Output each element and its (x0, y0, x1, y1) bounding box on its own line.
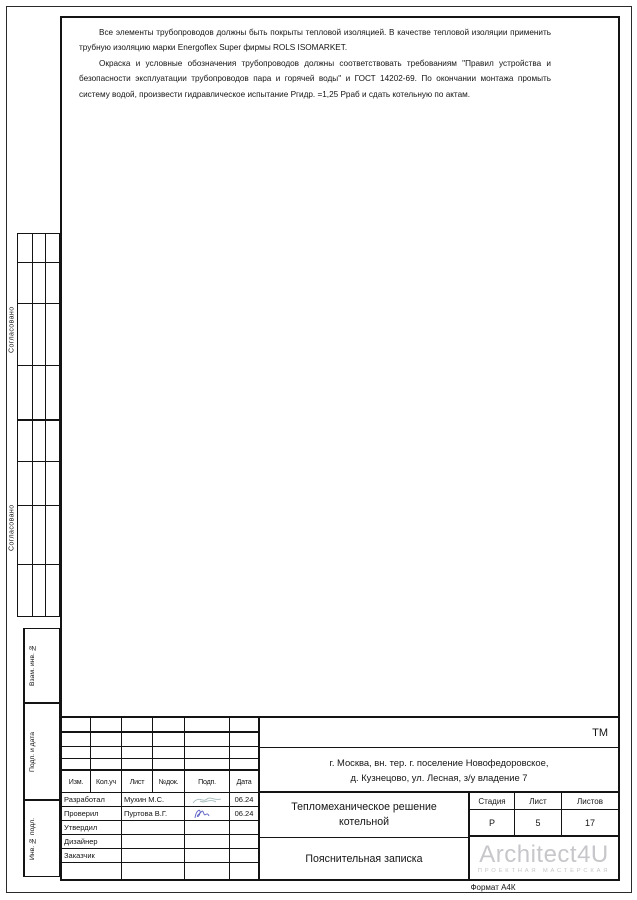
block-inv-podl: Инв. № подл. (23, 800, 60, 877)
empty-cell (62, 718, 91, 733)
empty-cell (46, 462, 59, 506)
empty-cell (230, 759, 258, 771)
row-role: Разработал (62, 793, 122, 807)
empty-cell (185, 718, 230, 733)
empty-cell (33, 565, 46, 616)
row-date: 06.24 (230, 807, 258, 821)
title-block-left-table: Изм. Кол.уч Лист №док. Подп. Дата Разраб… (62, 718, 260, 879)
address-line-1: г. Москва, вн. тер. г. поселение Новофед… (330, 755, 549, 770)
podp-data-label: Подп. и дата (24, 704, 40, 799)
row-name: Пуртова В.Г. (122, 807, 185, 821)
row-name (122, 835, 185, 849)
logo-text: Architect4U (479, 843, 609, 867)
empty-cell (91, 718, 122, 733)
signature-checker-icon (191, 807, 223, 820)
empty-cell (62, 733, 91, 747)
empty-cell (18, 366, 33, 419)
block-podp-data: Подп. и дата (23, 703, 60, 800)
col-header-data: Дата (230, 771, 258, 793)
col-header-izm: Изм. (62, 771, 91, 793)
empty-cell (18, 462, 33, 506)
row-role: Утвердил (62, 821, 122, 835)
stage-value: Р (470, 810, 515, 835)
empty-cell (185, 835, 230, 849)
empty-cell (122, 718, 153, 733)
col-header-podp: Подп. (185, 771, 230, 793)
row-date (230, 849, 258, 863)
empty-cell (122, 759, 153, 771)
empty-cell (33, 506, 46, 565)
empty-cell (91, 759, 122, 771)
empty-cell (62, 747, 91, 759)
col-header-ndok: №док. (153, 771, 185, 793)
vzam-inv-label: Взам. инв. № (24, 629, 40, 702)
agreed-label-2: Согласовано (7, 445, 17, 610)
document-code: ТМ (260, 718, 618, 748)
empty-cell (18, 304, 33, 366)
project-title-line-1: Тепломеханическое решение (291, 800, 437, 815)
empty-cell (33, 421, 46, 462)
agreed-label-1: Согласовано (7, 245, 17, 415)
empty-cell (185, 759, 230, 771)
approval-grid-2 (17, 420, 60, 617)
empty-cell (18, 234, 33, 263)
empty-cell (33, 304, 46, 366)
empty-cell (185, 733, 230, 747)
signature-checker (185, 807, 230, 821)
stage-header: Стадия (470, 793, 515, 810)
sheets-header: Листов (562, 793, 618, 810)
project-title-line-2: котельной (339, 815, 389, 830)
empty-cell (153, 718, 185, 733)
empty-cell (46, 263, 59, 304)
empty-cell (62, 863, 122, 879)
empty-cell (18, 421, 33, 462)
drawing-sheet: Все элементы трубопроводов должны быть п… (0, 0, 637, 900)
approval-grid-1 (17, 233, 60, 420)
empty-cell (33, 462, 46, 506)
sheet-header: Лист (515, 793, 562, 810)
empty-cell (33, 263, 46, 304)
empty-cell (46, 565, 59, 616)
format-label: Формат А4К (428, 883, 558, 892)
row-name (122, 849, 185, 863)
col-header-list: Лист (122, 771, 153, 793)
note-paragraph-1: Все элементы трубопроводов должны быть п… (79, 25, 551, 56)
company-logo: Architect4U ПРОЕКТНАЯ МАСТЕРСКАЯ (470, 837, 618, 879)
empty-cell (185, 747, 230, 759)
title-block-right: ТМ г. Москва, вн. тер. г. поселение Ново… (260, 718, 618, 879)
empty-cell (18, 506, 33, 565)
signature-developer (185, 793, 230, 807)
sheet-value: 5 (515, 810, 562, 835)
empty-cell (185, 849, 230, 863)
signature-developer-icon (191, 794, 223, 806)
empty-cell (122, 733, 153, 747)
sheets-value: 17 (562, 810, 618, 835)
empty-cell (46, 421, 59, 462)
title-block: Изм. Кол.уч Лист №док. Подп. Дата Разраб… (60, 716, 620, 881)
empty-cell (46, 304, 59, 366)
inv-podl-label: Инв. № подл. (24, 801, 40, 876)
block-vzam-inv: Взам. инв. № (23, 628, 60, 703)
empty-cell (153, 759, 185, 771)
address-line-2: д. Кузнецово, ул. Лесная, з/у владение 7 (351, 770, 528, 785)
empty-cell (230, 733, 258, 747)
notes-text: Все элементы трубопроводов должны быть п… (79, 25, 551, 102)
col-header-koluch: Кол.уч (91, 771, 122, 793)
row-date: 06.24 (230, 793, 258, 807)
empty-cell (46, 506, 59, 565)
empty-cell (122, 747, 153, 759)
empty-cell (33, 234, 46, 263)
empty-cell (185, 863, 230, 879)
empty-cell (153, 733, 185, 747)
empty-cell (62, 759, 91, 771)
empty-cell (185, 821, 230, 835)
empty-cell (46, 366, 59, 419)
project-address: г. Москва, вн. тер. г. поселение Новофед… (260, 748, 618, 793)
empty-cell (91, 747, 122, 759)
row-role: Заказчик (62, 849, 122, 863)
empty-cell (153, 747, 185, 759)
note-paragraph-2: Окраска и условные обозначения трубопров… (79, 56, 551, 102)
empty-cell (230, 863, 258, 879)
row-date (230, 835, 258, 849)
row-name: Мухин М.С. (122, 793, 185, 807)
empty-cell (18, 565, 33, 616)
logo-subtitle: ПРОЕКТНАЯ МАСТЕРСКАЯ (478, 868, 610, 874)
empty-cell (122, 863, 185, 879)
empty-cell (46, 234, 59, 263)
stage-table: Стадия Лист Листов Р 5 17 (470, 793, 618, 837)
document-type: Пояснительная записка (260, 838, 470, 879)
project-title: Тепломеханическое решение котельной (260, 793, 470, 838)
row-date (230, 821, 258, 835)
empty-cell (33, 366, 46, 419)
empty-cell (91, 733, 122, 747)
empty-cell (18, 263, 33, 304)
empty-cell (230, 718, 258, 733)
row-role: Дизайнер (62, 835, 122, 849)
row-name (122, 821, 185, 835)
empty-cell (230, 747, 258, 759)
row-role: Проверил (62, 807, 122, 821)
